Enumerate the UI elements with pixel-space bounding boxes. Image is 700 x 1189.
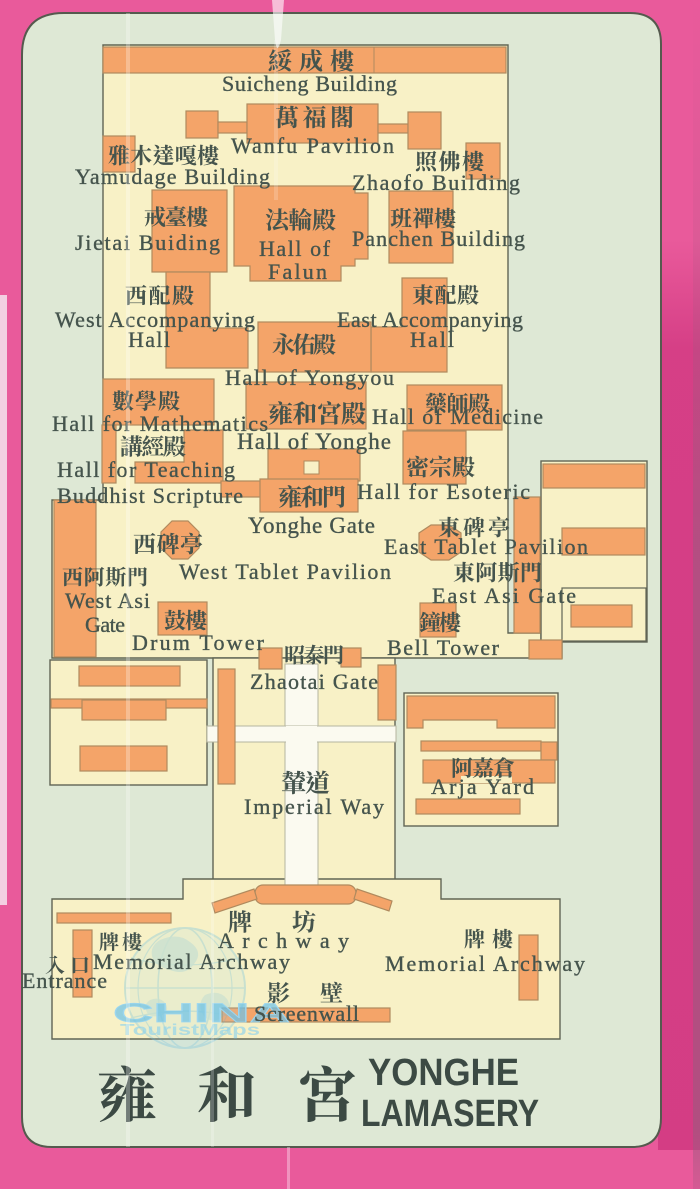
svg-text:LAMASERY: LAMASERY bbox=[361, 1093, 539, 1135]
svg-text:Hall of Medicine: Hall of Medicine bbox=[372, 404, 543, 429]
svg-text:Screenwall: Screenwall bbox=[254, 1001, 359, 1026]
svg-text:Hall: Hall bbox=[410, 327, 454, 352]
svg-text:Hall for Teaching: Hall for Teaching bbox=[57, 457, 235, 482]
svg-text:Hall: Hall bbox=[128, 327, 170, 352]
svg-text:Yamudage Building: Yamudage Building bbox=[75, 164, 270, 189]
svg-text:Gate: Gate bbox=[85, 612, 125, 637]
svg-text:Arja Yard: Arja Yard bbox=[431, 774, 534, 799]
svg-text:Panchen Building: Panchen Building bbox=[352, 226, 525, 251]
svg-text:Wanfu Pavilion: Wanfu Pavilion bbox=[231, 133, 394, 158]
svg-text:Imperial Way: Imperial Way bbox=[244, 794, 384, 819]
svg-text:West Tablet Pavilion: West Tablet Pavilion bbox=[179, 559, 391, 584]
svg-text:YONGHE: YONGHE bbox=[368, 1052, 519, 1094]
svg-text:Entrance: Entrance bbox=[22, 968, 107, 993]
svg-text:East Tablet Pavilion: East Tablet Pavilion bbox=[384, 534, 588, 559]
svg-text:Bell Tower: Bell Tower bbox=[387, 635, 500, 660]
svg-text:TouristMaps: TouristMaps bbox=[120, 1022, 260, 1039]
svg-text:Hall of Yongyou: Hall of Yongyou bbox=[225, 365, 394, 390]
svg-text:East Asi Gate: East Asi Gate bbox=[432, 583, 576, 608]
svg-text:Yonghe Gate: Yonghe Gate bbox=[248, 513, 375, 538]
svg-text:West Asi: West Asi bbox=[65, 588, 150, 613]
svg-text:Falun: Falun bbox=[268, 259, 327, 284]
svg-text:Memorial Archway: Memorial Archway bbox=[93, 949, 290, 974]
svg-text:Suicheng Building: Suicheng Building bbox=[222, 71, 397, 96]
svg-text:Zhaofo Building: Zhaofo Building bbox=[352, 170, 520, 195]
svg-text:Hall for Mathematics: Hall for Mathematics bbox=[52, 411, 268, 436]
svg-text:Hall for Esoteric: Hall for Esoteric bbox=[357, 479, 530, 504]
svg-text:Buddhist Scripture: Buddhist Scripture bbox=[57, 483, 243, 508]
svg-text:Jietai Buiding: Jietai Buiding bbox=[75, 230, 220, 255]
svg-text:Zhaotai Gate: Zhaotai Gate bbox=[250, 669, 378, 694]
svg-text:Hall of: Hall of bbox=[259, 236, 331, 261]
